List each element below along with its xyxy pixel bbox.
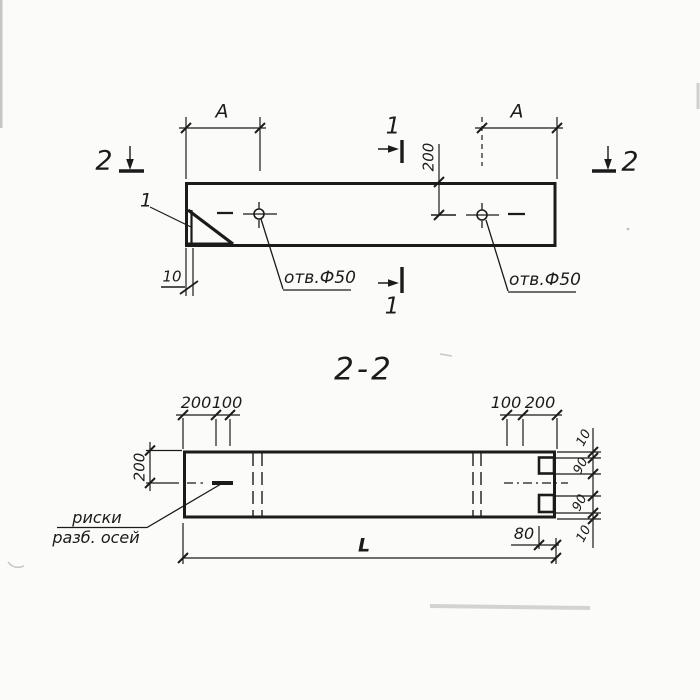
section-label-2-right: 2: [621, 149, 638, 176]
drawing-sheet: A A 200 2 2 1 1 1 отв.Ф50 отв.Ф50 10 2-2…: [0, 0, 700, 700]
section-view-outline: [185, 452, 555, 517]
dim-label-100-top-right: 100: [491, 395, 522, 411]
dim-label-a-left: A: [216, 103, 229, 122]
dim-label-10-wall: 10: [162, 270, 181, 285]
section-label-2-left: 2: [95, 148, 112, 175]
top-view-outline: [187, 184, 556, 246]
hole-note-right: отв.Ф50: [509, 272, 581, 289]
top-view-dimensions: [161, 117, 563, 296]
dim-label-200-height: 200: [133, 453, 148, 482]
dim-label-200-top-left: 200: [181, 395, 212, 411]
detail-mark-1: 1: [140, 192, 152, 211]
dim-label-200-top-right: 200: [525, 395, 556, 411]
axis-note-line2: разб. осей: [52, 530, 139, 546]
hole-note-left: отв.Ф50: [284, 270, 356, 287]
drawing-linework: [0, 0, 700, 700]
section-title: 2-2: [334, 355, 394, 386]
dim-label-200-top: 200: [422, 143, 437, 172]
section-label-1-top: 1: [386, 116, 401, 139]
section-label-1-bottom: 1: [385, 296, 400, 319]
axis-note-line1: риски: [72, 510, 121, 526]
dim-label-100-top-left: 100: [212, 395, 243, 411]
dim-label-length: L: [358, 537, 370, 556]
dim-label-80: 80: [514, 526, 534, 542]
dim-label-a-right: A: [511, 103, 524, 122]
